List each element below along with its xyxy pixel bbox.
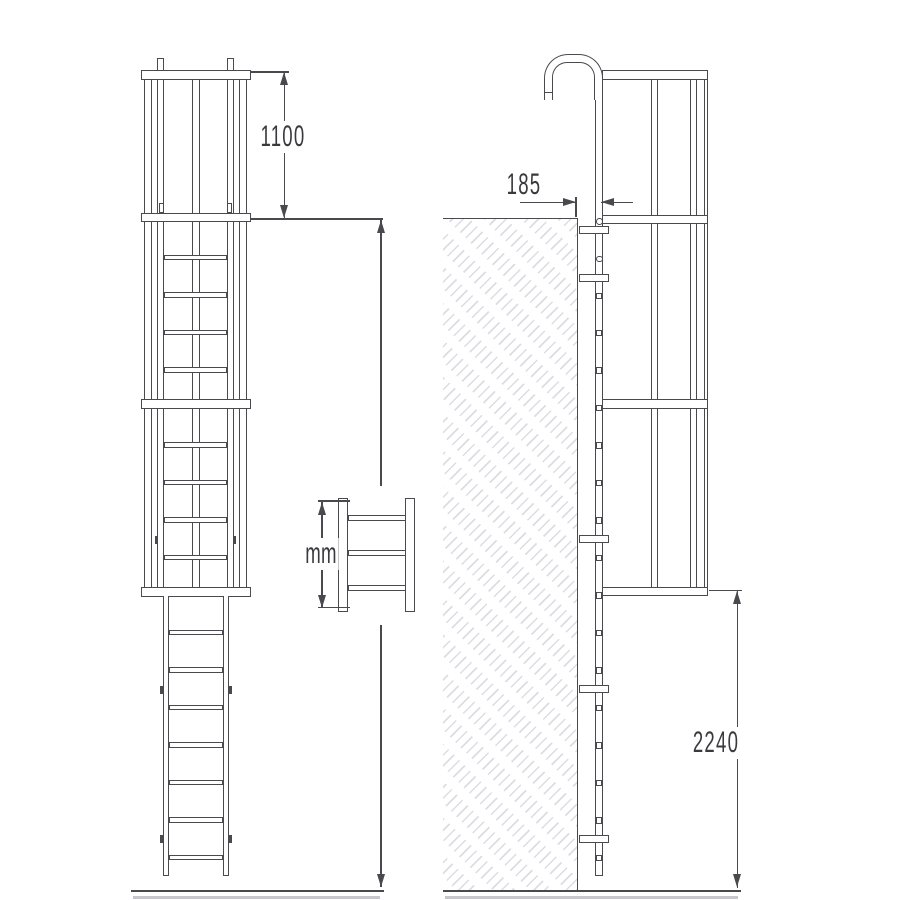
extension-line (251, 218, 383, 219)
dimension-arrowhead (318, 502, 326, 515)
grab-hook-inner (552, 62, 595, 100)
dimension-arrowhead (377, 874, 385, 887)
ladder-installation-drawing: 1100 185 mm 2240 (0, 0, 900, 900)
dimension-annotations (0, 0, 900, 900)
dimension-arrowhead (733, 874, 741, 887)
dimension-arrowhead (377, 220, 385, 233)
dimension-arrowhead (318, 595, 326, 608)
grab-hook-end-cap (544, 92, 553, 94)
dimension-line (380, 220, 381, 486)
dimension-arrowhead (280, 205, 288, 218)
dimension-label-height-unit: mm (303, 538, 338, 570)
dimension-label-wall-offset: 185 (505, 169, 543, 201)
dimension-label-cage-top: 1100 (259, 121, 308, 153)
dimension-arrowhead (563, 198, 576, 206)
dimension-arrowhead (280, 72, 288, 85)
dimension-line (380, 625, 381, 887)
dimension-arrowhead (601, 198, 614, 206)
dimension-arrowhead (733, 591, 741, 604)
dimension-label-ground-clearance: 2240 (691, 727, 741, 759)
